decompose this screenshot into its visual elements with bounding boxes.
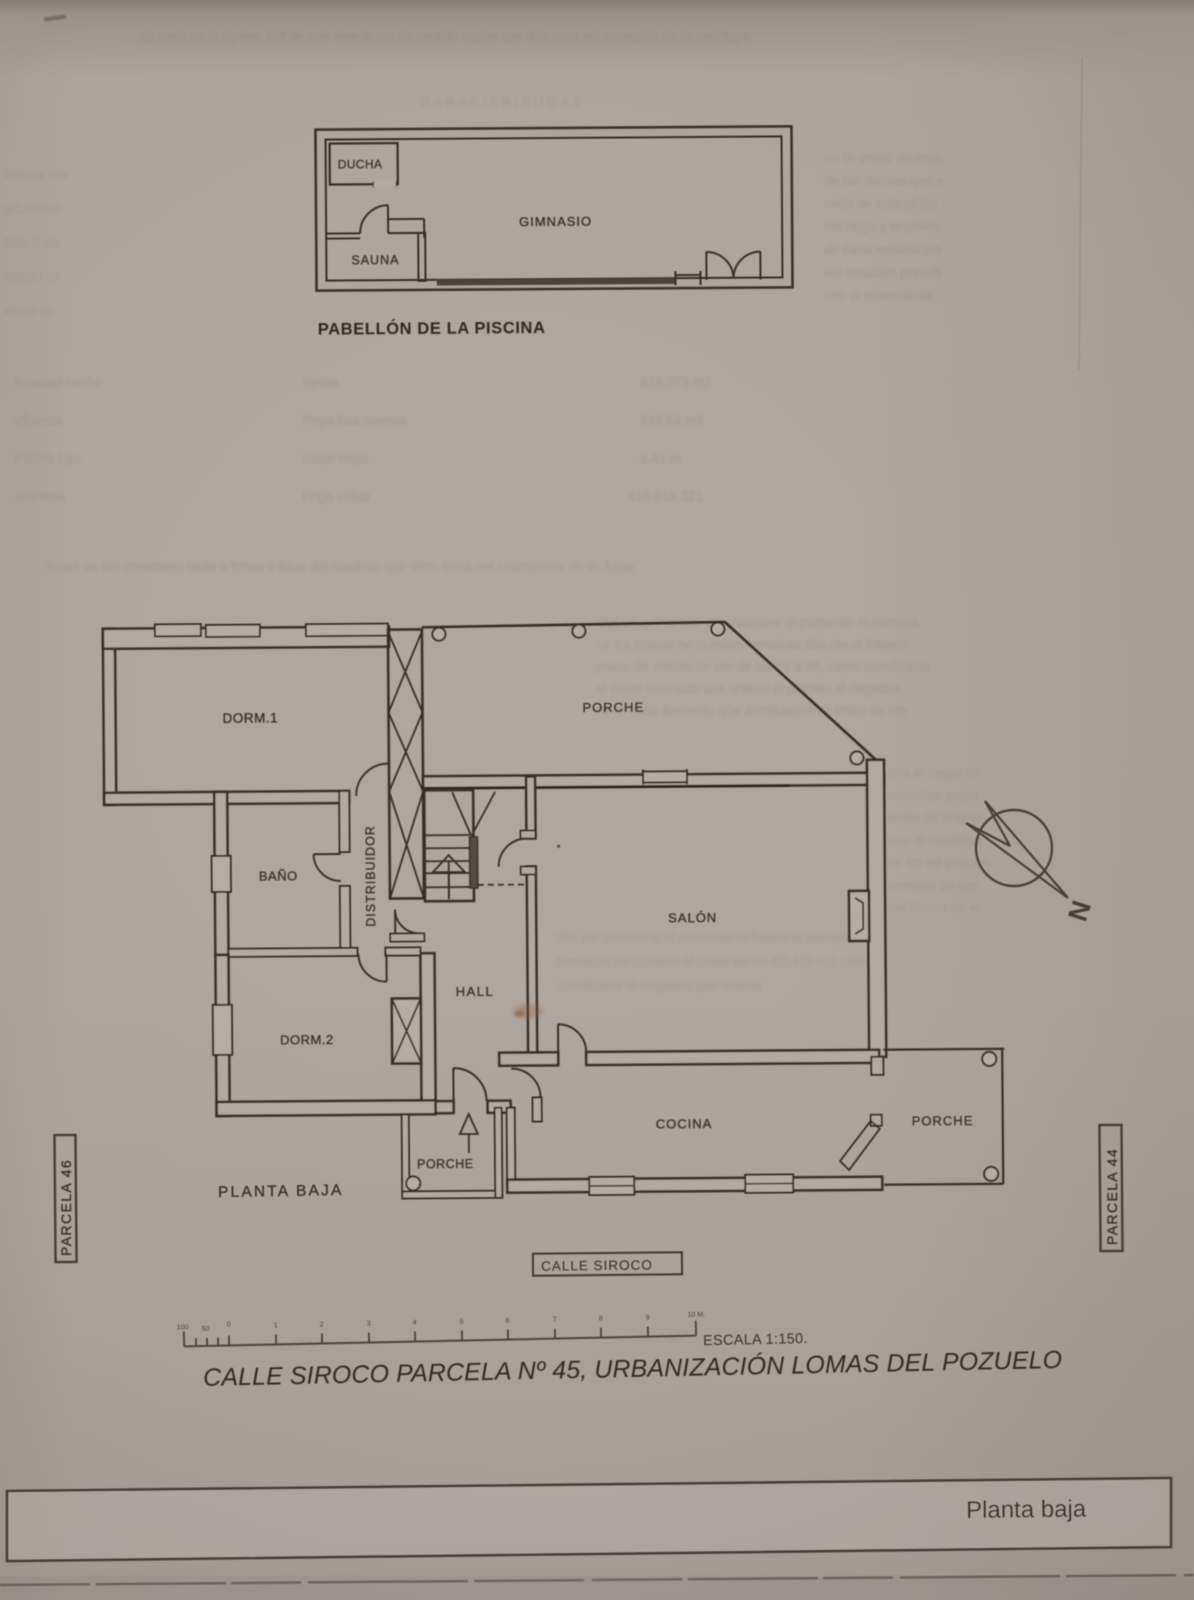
svg-text:Planta baja: Planta baja xyxy=(966,1496,1087,1524)
